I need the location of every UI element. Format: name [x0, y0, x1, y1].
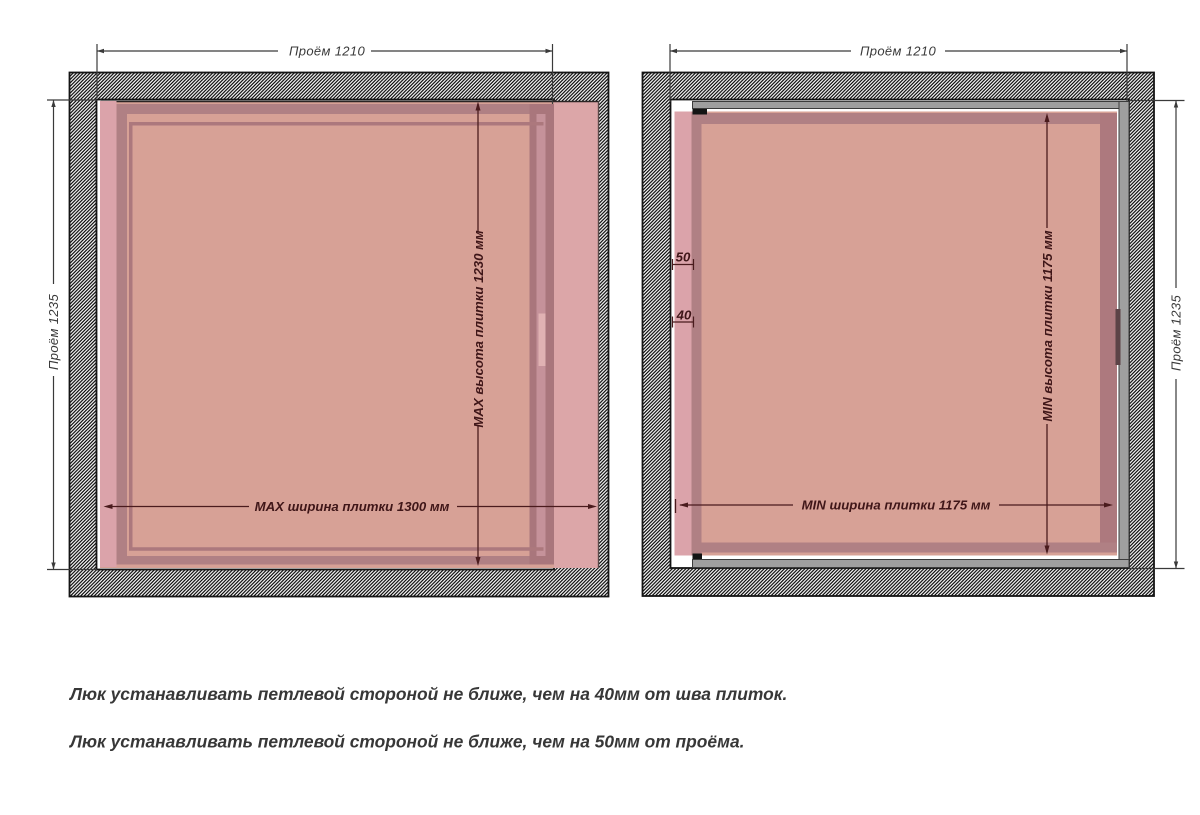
svg-text:Проём 1235: Проём 1235	[1169, 295, 1184, 371]
svg-text:MIN высота плитки 1175 мм: MIN высота плитки 1175 мм	[1040, 230, 1055, 421]
svg-text:Проём 1235: Проём 1235	[46, 294, 61, 370]
svg-text:Люк устанавливать петлевой сто: Люк устанавливать петлевой стороной не б…	[68, 732, 744, 752]
svg-text:Проём 1210: Проём 1210	[860, 44, 936, 59]
svg-text:MAX высота плитки 1230 мм: MAX высота плитки 1230 мм	[471, 230, 486, 428]
svg-text:50: 50	[676, 250, 691, 265]
svg-text:40: 40	[676, 308, 692, 323]
svg-text:MAX ширина плитки 1300 мм: MAX ширина плитки 1300 мм	[255, 499, 450, 514]
svg-text:Люк устанавливать петлевой сто: Люк устанавливать петлевой стороной не б…	[68, 684, 787, 704]
svg-text:Проём 1210: Проём 1210	[289, 44, 365, 59]
svg-text:MIN ширина плитки 1175 мм: MIN ширина плитки 1175 мм	[802, 498, 991, 513]
